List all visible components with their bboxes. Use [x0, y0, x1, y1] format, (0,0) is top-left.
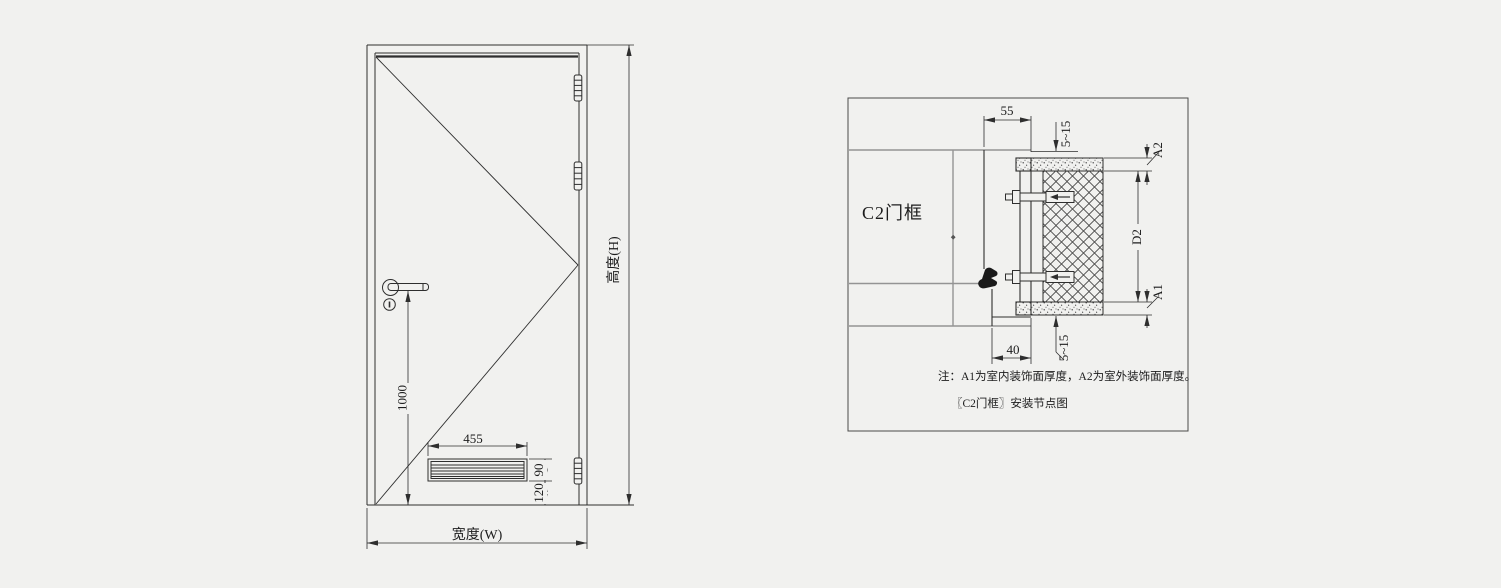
handle-height-value: 1000 [395, 385, 410, 411]
inner-finish-value: A1 [1150, 284, 1165, 300]
width-label: 宽度(W) [452, 526, 503, 543]
handle-lever [388, 284, 429, 291]
hinge-bottom [574, 458, 582, 484]
louver-height-value: 90 [531, 464, 546, 477]
door-seal [978, 268, 997, 289]
louver-offset-value: 120 [531, 483, 546, 503]
drawing-sheet: 宽度(W) 高度(H) 1000 455 90 120 [0, 0, 1501, 588]
frame-label: C2门框 [862, 203, 923, 223]
detail-title: 〖C2门框〗安装节点图 [951, 396, 1068, 410]
hinge-middle [574, 162, 582, 190]
height-label: 高度(H) [605, 236, 622, 284]
frame-cap-bottom [1016, 302, 1031, 315]
installation-detail-view: C2门框 55 5~15 A2 D2 A1 5~15 40 注：A1为室内装饰面… [848, 98, 1196, 431]
cad-drawing: 宽度(W) 高度(H) 1000 455 90 120 [0, 0, 1501, 588]
outer-finish-value: A2 [1150, 142, 1165, 158]
frame-cap-top [1016, 158, 1031, 171]
louver-width-value: 455 [463, 431, 483, 446]
detail-note: 注：A1为室内装饰面厚度，A2为室外装饰面厚度。 [938, 369, 1196, 383]
expansion-bolt-bottom [1006, 271, 1075, 284]
handle-rosette [383, 280, 399, 296]
wall-thickness-dimension [1104, 171, 1152, 302]
louver-outer [428, 459, 527, 481]
swing-line-upper [376, 57, 578, 265]
inner-finish-strip [1031, 302, 1103, 315]
louver-vent [428, 459, 527, 481]
frame-profile [978, 150, 1031, 326]
finish-and-wall [1031, 158, 1103, 315]
door-handle [383, 280, 429, 311]
hinges [574, 75, 582, 484]
frame-depth-dimension [984, 116, 1031, 152]
frame-face-dimension [992, 318, 1031, 364]
louver-inner [431, 462, 524, 479]
hinge-top [574, 75, 582, 101]
frame-depth-value: 55 [1001, 103, 1014, 118]
expansion-bolt-top [1006, 191, 1075, 204]
door-dimensions [367, 45, 634, 549]
door-elevation-view: 宽度(W) 高度(H) 1000 455 90 120 [367, 45, 634, 549]
frame-face-value: 40 [1007, 342, 1020, 357]
gap-top-value: 5~15 [1058, 121, 1073, 148]
gap-bottom-value: 5~15 [1056, 335, 1071, 362]
door-frame [367, 45, 634, 505]
break-mark [951, 235, 956, 240]
wall-thickness-value: D2 [1129, 229, 1144, 245]
outer-finish-strip [1031, 158, 1103, 171]
wall-lines [849, 150, 1031, 326]
